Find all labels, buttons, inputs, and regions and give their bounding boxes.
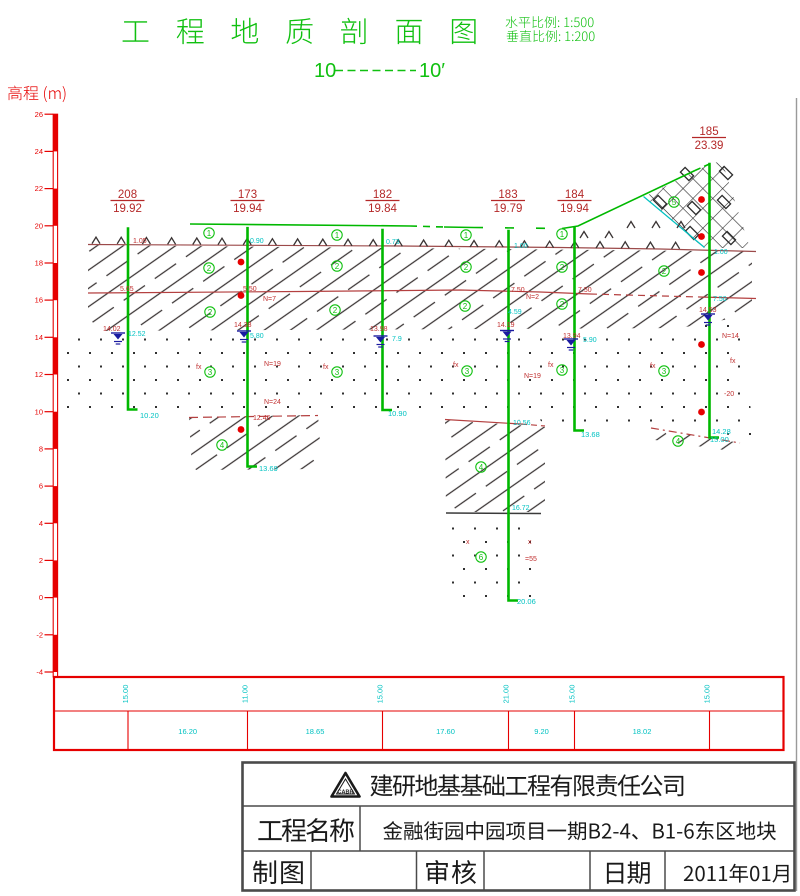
svg-text:12.52: 12.52 <box>128 331 146 338</box>
svg-text:7.50: 7.50 <box>713 296 727 303</box>
svg-text:审核: 审核 <box>424 853 478 890</box>
svg-text:5: 5 <box>672 198 677 207</box>
svg-text:fx: fx <box>548 362 554 369</box>
svg-text:1: 1 <box>335 231 340 240</box>
svg-text:21.00: 21.00 <box>502 685 511 704</box>
svg-text:20: 20 <box>35 221 43 230</box>
svg-text:13.94: 13.94 <box>563 333 581 340</box>
svg-text:16.72: 16.72 <box>512 505 530 512</box>
svg-text:4.59: 4.59 <box>508 309 522 316</box>
svg-text:15.00: 15.00 <box>121 685 130 704</box>
svg-text:16: 16 <box>35 296 43 305</box>
svg-text:5.90: 5.90 <box>583 337 597 344</box>
svg-text:11.00: 11.00 <box>241 685 250 703</box>
svg-text:24: 24 <box>35 147 43 156</box>
svg-text:工程名称: 工程名称 <box>257 811 354 848</box>
svg-text:3: 3 <box>335 368 340 377</box>
svg-text:N=7: N=7 <box>263 296 276 303</box>
svg-text:fx: fx <box>730 358 736 365</box>
svg-text:2: 2 <box>463 302 468 311</box>
svg-text:-2: -2 <box>36 630 43 639</box>
svg-text:3: 3 <box>560 366 565 375</box>
svg-text:3: 3 <box>662 367 667 376</box>
svg-text:7.50: 7.50 <box>511 287 525 294</box>
svg-text:0.73: 0.73 <box>386 239 400 246</box>
svg-text:2: 2 <box>208 308 213 317</box>
svg-text:5.80: 5.80 <box>250 333 264 340</box>
svg-text:13.68: 13.68 <box>581 430 600 439</box>
svg-text:垂直比例: 1:200: 垂直比例: 1:200 <box>506 26 595 45</box>
svg-text:10.56: 10.56 <box>513 420 531 427</box>
svg-text:7.50: 7.50 <box>578 287 592 294</box>
svg-text:183: 183 <box>498 189 517 201</box>
svg-text:fx: fx <box>453 362 459 369</box>
svg-text:173: 173 <box>238 189 257 201</box>
svg-text:10: 10 <box>314 60 336 82</box>
svg-text:建研地基基础工程有限责任公司: 建研地基基础工程有限责任公司 <box>370 767 685 802</box>
svg-text:14: 14 <box>35 333 43 342</box>
svg-text:10.20: 10.20 <box>140 411 159 420</box>
svg-text:19.84: 19.84 <box>368 203 397 215</box>
svg-text:CABR: CABR <box>338 790 354 796</box>
svg-text:5.65: 5.65 <box>120 286 134 293</box>
svg-text:15.00: 15.00 <box>710 435 729 444</box>
svg-text:9.20: 9.20 <box>534 727 549 736</box>
svg-text:2: 2 <box>207 264 212 273</box>
svg-text:fx: fx <box>650 363 656 370</box>
svg-text:fx: fx <box>196 364 202 371</box>
svg-text:19.79: 19.79 <box>494 203 523 215</box>
svg-text:15.00: 15.00 <box>376 685 385 704</box>
svg-text:2: 2 <box>39 556 43 565</box>
svg-text:10: 10 <box>35 407 43 416</box>
svg-text:2: 2 <box>333 306 338 315</box>
svg-text:N=19: N=19 <box>264 361 281 368</box>
svg-text:x: x <box>466 539 470 546</box>
svg-text:16.20: 16.20 <box>178 727 197 736</box>
svg-text:6: 6 <box>39 482 43 491</box>
svg-text:17.60: 17.60 <box>436 727 455 736</box>
svg-text:工程地质剖面图: 工程地质剖面图 <box>121 9 504 51</box>
svg-text:19.94: 19.94 <box>233 203 262 215</box>
svg-text:10.90: 10.90 <box>388 409 407 418</box>
svg-text:1: 1 <box>560 230 565 239</box>
svg-text:26: 26 <box>35 110 43 119</box>
svg-text:4: 4 <box>479 463 484 472</box>
svg-text:20.06: 20.06 <box>517 597 536 606</box>
svg-text:=55: =55 <box>525 556 537 563</box>
svg-text:1.05: 1.05 <box>133 238 147 245</box>
svg-text:14.38: 14.38 <box>234 322 252 329</box>
svg-text:2: 2 <box>560 300 565 309</box>
svg-text:5.50: 5.50 <box>243 286 257 293</box>
svg-text:0: 0 <box>39 593 43 602</box>
svg-text:18.65: 18.65 <box>306 727 325 736</box>
svg-text:-4: -4 <box>36 668 43 677</box>
svg-text:14.53: 14.53 <box>699 307 717 314</box>
svg-text:N=24: N=24 <box>264 399 281 406</box>
svg-text:fx: fx <box>323 364 329 371</box>
svg-text:8: 8 <box>39 445 43 454</box>
svg-text:N=2: N=2 <box>526 294 539 301</box>
svg-text:182: 182 <box>373 189 392 201</box>
svg-text:19.92: 19.92 <box>113 203 142 215</box>
svg-text:1: 1 <box>207 229 212 238</box>
svg-text:x: x <box>528 539 532 546</box>
svg-text:1.00: 1.00 <box>514 243 528 250</box>
svg-text:4: 4 <box>676 437 681 446</box>
svg-text:日期: 日期 <box>603 854 651 890</box>
svg-text:185: 185 <box>699 126 718 138</box>
svg-text:-20: -20 <box>724 391 734 398</box>
svg-text:6: 6 <box>479 553 484 562</box>
svg-text:高程 (m): 高程 (m) <box>7 80 67 104</box>
svg-text:3: 3 <box>208 368 213 377</box>
svg-text:14.02: 14.02 <box>103 326 121 333</box>
svg-text:12: 12 <box>35 370 43 379</box>
svg-text:金融街园中园项目一期B2-4、B1-6东区地块: 金融街园中园项目一期B2-4、B1-6东区地块 <box>383 815 777 845</box>
svg-text:4: 4 <box>39 519 43 528</box>
svg-text:0.90: 0.90 <box>250 238 264 245</box>
svg-text:N=19: N=19 <box>524 373 541 380</box>
svg-text:N=14: N=14 <box>722 333 739 340</box>
svg-text:15.00: 15.00 <box>703 685 712 704</box>
svg-text:4: 4 <box>220 441 225 450</box>
svg-text:18.02: 18.02 <box>633 727 652 736</box>
svg-text:制图: 制图 <box>252 853 306 890</box>
svg-text:208: 208 <box>118 189 137 201</box>
svg-text:2011年01月: 2011年01月 <box>683 857 792 887</box>
svg-text:15.00: 15.00 <box>568 685 577 704</box>
svg-text:22: 22 <box>35 184 43 193</box>
svg-text:23.39: 23.39 <box>695 140 724 152</box>
svg-text:14.19: 14.19 <box>497 322 515 329</box>
svg-text:2: 2 <box>560 263 565 272</box>
svg-text:10′: 10′ <box>419 60 445 82</box>
svg-text:2: 2 <box>464 263 469 272</box>
svg-text:18: 18 <box>35 259 43 268</box>
svg-text:19.94: 19.94 <box>560 203 589 215</box>
svg-text:2: 2 <box>335 262 340 271</box>
svg-text:7.9: 7.9 <box>392 336 402 343</box>
svg-text:184: 184 <box>565 189 585 201</box>
svg-text:1: 1 <box>464 231 469 240</box>
svg-text:13.98: 13.98 <box>370 326 388 333</box>
svg-text:1.00: 1.00 <box>714 249 728 256</box>
svg-text:2: 2 <box>662 267 667 276</box>
svg-text:3: 3 <box>465 367 470 376</box>
svg-text:12.46: 12.46 <box>253 415 271 422</box>
svg-text:13.69: 13.69 <box>259 464 278 473</box>
